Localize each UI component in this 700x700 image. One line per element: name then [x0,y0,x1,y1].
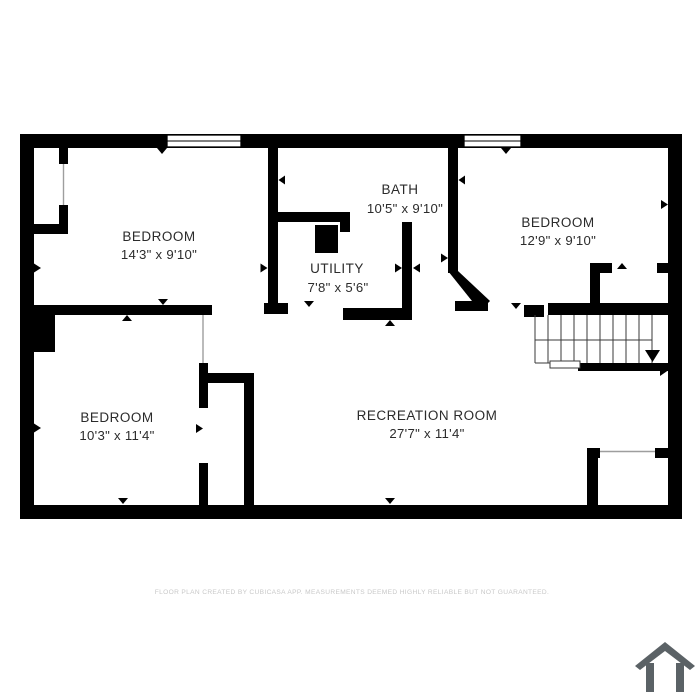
wall-bedroom2-closet-top-r [657,263,668,273]
disclaimer-text: FLOOR PLAN CREATED BY CUBICASA APP. MEAS… [155,589,549,596]
wall-stairs-bottom [578,363,668,371]
wall-outer-bottom [20,505,682,519]
chimney-block [20,305,55,352]
stairs-lowest-tread [550,361,580,368]
wall-outer-top [20,134,682,148]
wall-bedroom1-right [268,148,278,305]
wall-utility-jog [340,212,350,232]
room-label-bath: BATH [381,182,418,197]
room-label-bedroom2: BEDROOM [521,215,594,230]
wall-closet-br-cap-l [587,448,600,458]
wall-bedroom3-right-b [199,463,208,505]
room-dims-recreation: 27'7" x 11'4" [389,426,464,441]
wall-stairs-top [548,303,668,315]
room-label-bedroom1: BEDROOM [122,229,195,244]
wall-utility-right [402,222,412,320]
room-dims-bedroom2: 12'9" x 9'10" [520,233,596,248]
wall-diagonal-return [455,301,488,311]
wall-utility-top [278,212,350,222]
utility-appliance [315,225,338,253]
floor-plan-drawing: BEDROOM 14'3" x 9'10" BATH 10'5" x 9'10"… [0,0,700,700]
room-dims-bedroom1: 14'3" x 9'10" [121,247,197,262]
wall-bedroom3-right-a [199,363,208,408]
wall-outer-right [668,134,682,519]
wall-bath-bedroom2 [448,148,458,273]
wall-closet-tl-upper [59,148,68,164]
room-dims-utility: 7'8" x 5'6" [308,280,369,295]
room-dims-bedroom3: 10'3" x 11'4" [79,428,154,443]
room-label-utility: UTILITY [310,261,364,276]
logo-left-leg [646,663,654,692]
logo-right-leg [676,663,684,692]
wall-bedroom2-closet-top-l [590,263,612,273]
wall-utility-bottom [343,308,412,320]
wall-closet-tl-bottom [34,224,68,234]
room-label-recreation: RECREATION ROOM [357,408,498,423]
wall-stairs-stub [524,305,544,317]
wall-bedroom3-closet-right [244,373,254,505]
floor-plan-canvas: BEDROOM 14'3" x 9'10" BATH 10'5" x 9'10"… [0,0,700,700]
wall-bedroom1-right-cap [264,303,288,314]
wall-closet-br-cap-r [655,448,668,458]
window-2 [464,135,521,147]
room-label-bedroom3: BEDROOM [80,410,153,425]
window-1 [167,135,241,147]
room-dims-bath: 10'5" x 9'10" [367,201,443,216]
